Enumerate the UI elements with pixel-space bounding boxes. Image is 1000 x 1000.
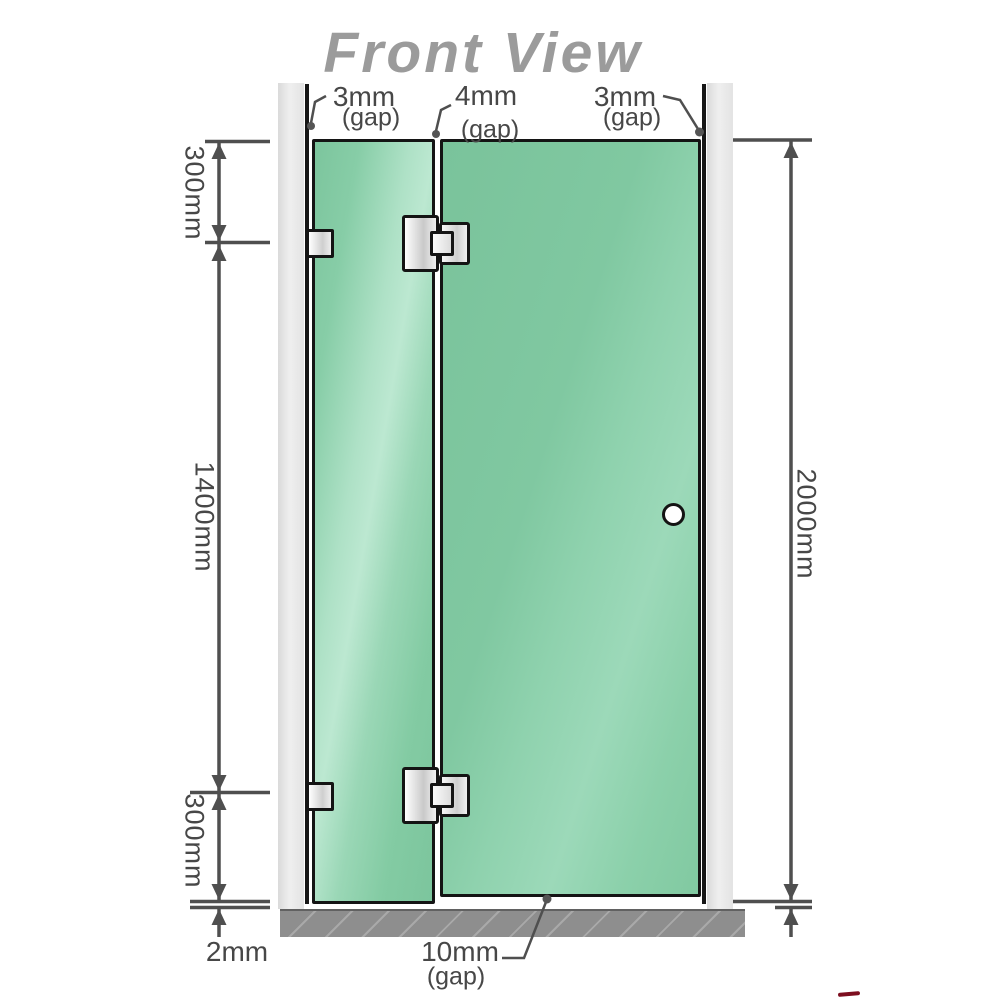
wall-bracket-top [306, 229, 334, 258]
gap-word-top-left: (gap) [342, 106, 400, 131]
wall-bracket-bottom [306, 782, 334, 811]
floor-slab [280, 909, 745, 937]
gap-word-bottom: (gap) [427, 965, 485, 990]
gap-word-top-middle: (gap) [461, 118, 519, 143]
gap-word-top-right: (gap) [603, 106, 661, 131]
front-view-diagram: Front View [0, 0, 1000, 1000]
cropped-logo-mark [838, 991, 860, 997]
door-knob [662, 503, 685, 526]
hinge-top [402, 215, 470, 272]
right-wall-edge-line [702, 84, 706, 904]
measurement-right-total: 2000mm [793, 468, 820, 579]
measurement-floor-gap-left: 2mm [206, 938, 268, 966]
hinge-tab-icon [430, 231, 454, 256]
hinge-bottom [402, 767, 470, 824]
gap-label-top-middle: 4mm [455, 82, 517, 110]
left-wall-edge-line [305, 84, 309, 904]
measurement-left-top: 300mm [181, 145, 208, 240]
left-wall [278, 83, 304, 909]
measurement-left-middle: 1400mm [191, 461, 218, 572]
measurement-left-bottom: 300mm [181, 793, 208, 888]
hinge-tab-icon [430, 783, 454, 808]
page-title: Front View [323, 20, 642, 86]
right-wall [707, 83, 733, 909]
